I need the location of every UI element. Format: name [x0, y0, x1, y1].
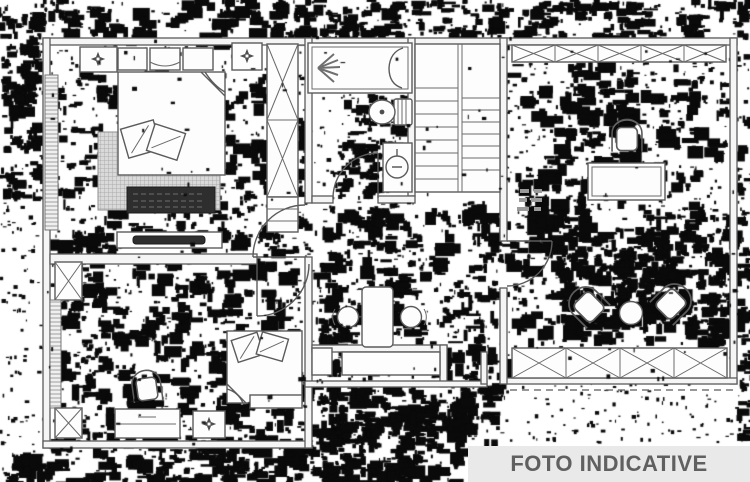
scan-noise-overlay [0, 0, 750, 482]
watermark-label: FOTO INDICATIVE [510, 451, 707, 477]
watermark-banner: FOTO INDICATIVE [468, 446, 750, 482]
scanned-floor-plan-page: FOTO INDICATIVE [0, 0, 750, 482]
